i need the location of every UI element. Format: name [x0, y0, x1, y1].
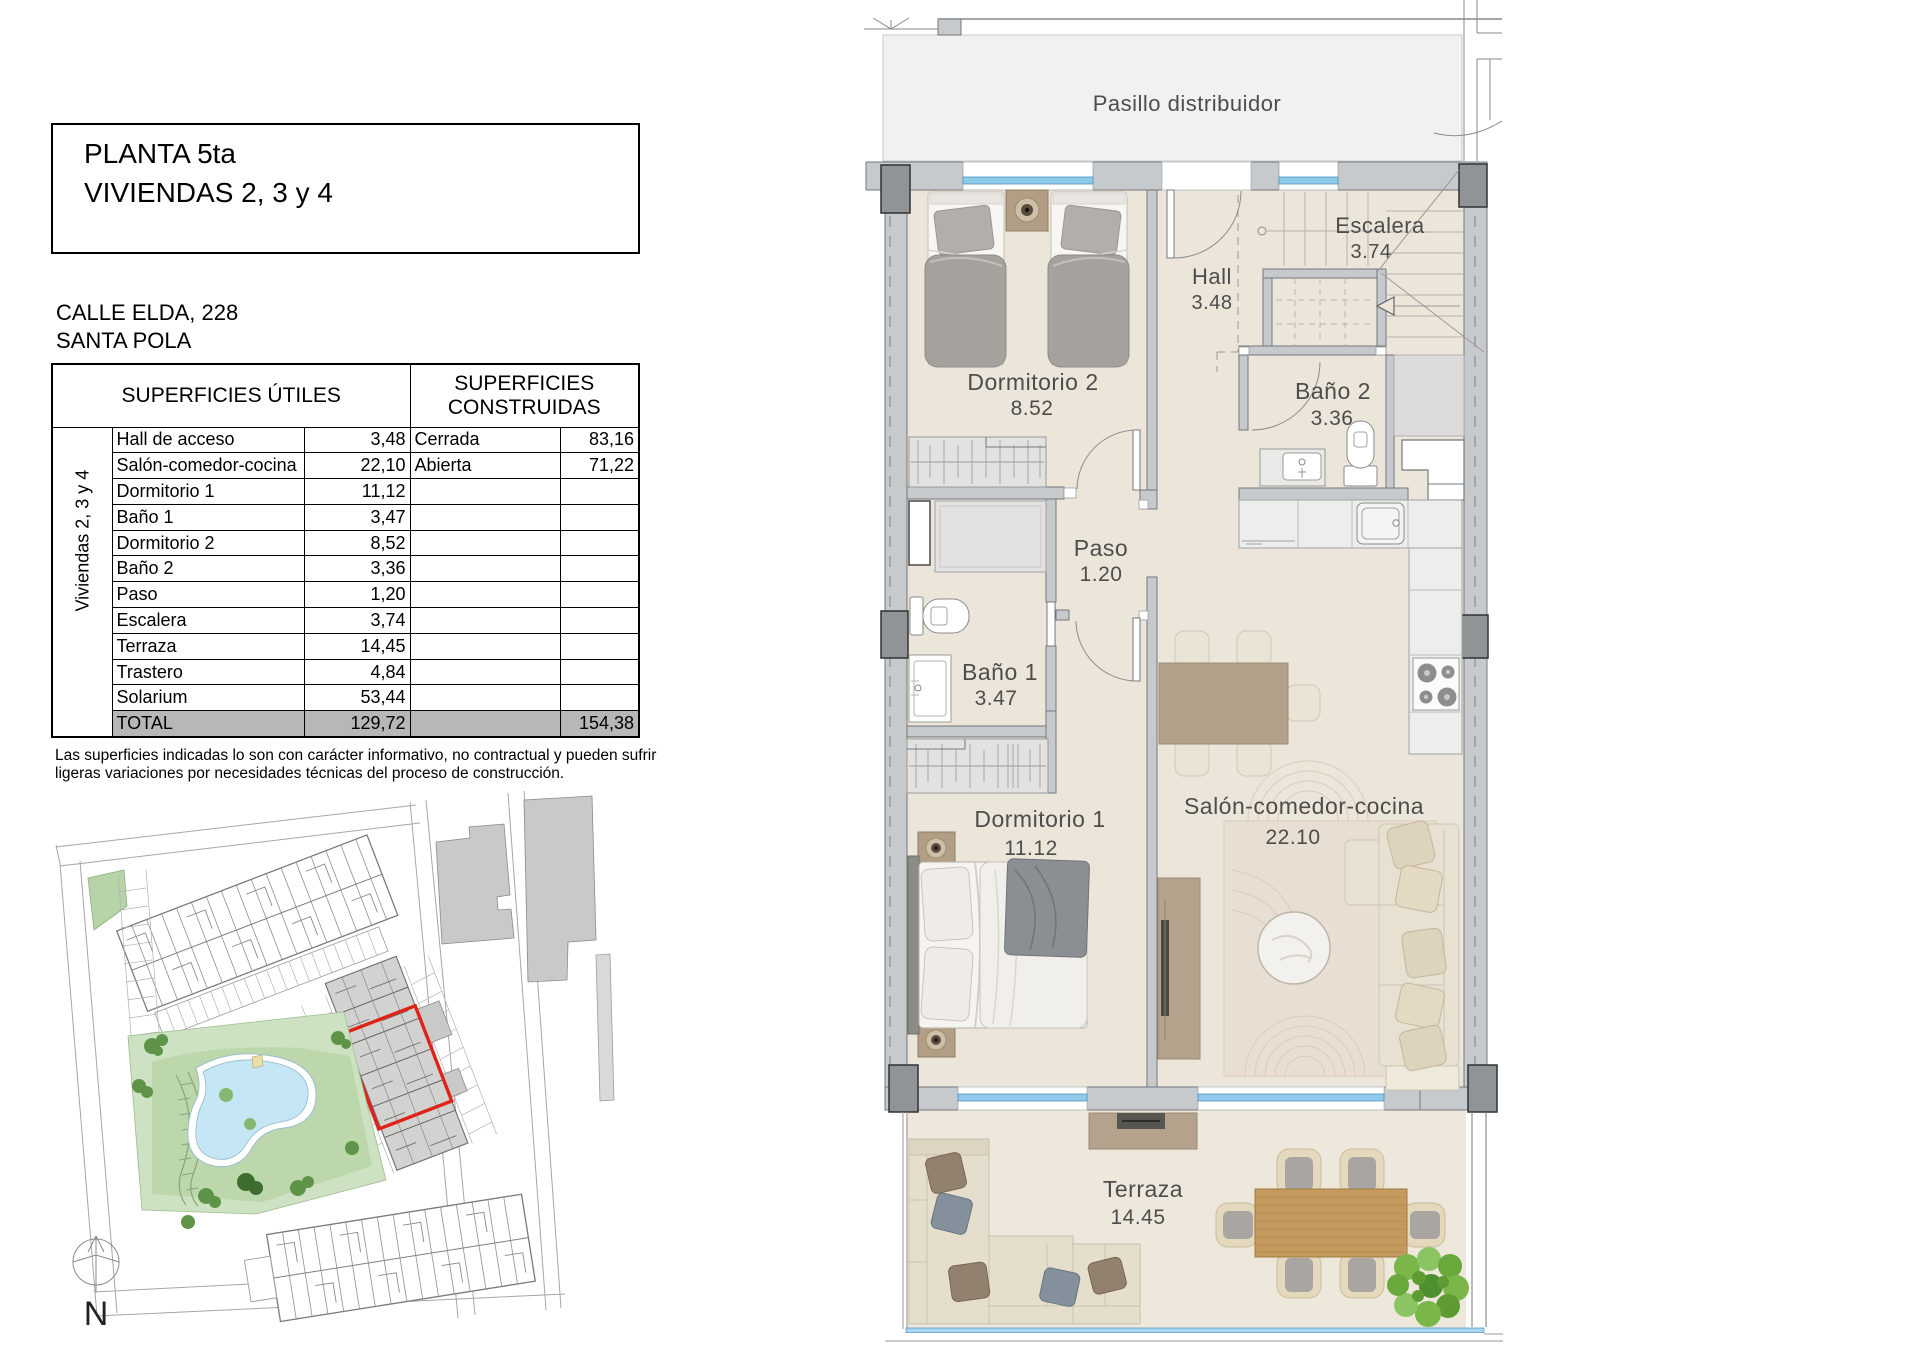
svg-text:Terraza: Terraza [1103, 1176, 1183, 1202]
svg-text:N: N [84, 1295, 109, 1333]
svg-text:3.47: 3.47 [975, 687, 1018, 710]
svg-text:11.12: 11.12 [1004, 837, 1058, 860]
svg-text:3.74: 3.74 [1351, 241, 1392, 263]
svg-text:3.36: 3.36 [1311, 407, 1354, 430]
svg-text:Baño 1: Baño 1 [962, 659, 1038, 685]
svg-text:Hall: Hall [1192, 264, 1232, 289]
svg-text:Pasillo distribuidor: Pasillo distribuidor [1093, 91, 1282, 116]
svg-text:3.48: 3.48 [1192, 292, 1233, 314]
svg-text:14.45: 14.45 [1110, 1206, 1165, 1229]
svg-text:22.10: 22.10 [1265, 826, 1320, 849]
svg-text:Baño 2: Baño 2 [1295, 378, 1371, 404]
svg-text:Dormitorio 1: Dormitorio 1 [974, 806, 1105, 832]
svg-text:8.52: 8.52 [1011, 397, 1054, 420]
svg-text:Dormitorio 2: Dormitorio 2 [967, 369, 1098, 395]
svg-text:Paso: Paso [1074, 535, 1128, 561]
svg-text:Salón-comedor-cocina: Salón-comedor-cocina [1184, 793, 1424, 819]
svg-text:Escalera: Escalera [1335, 213, 1425, 238]
svg-text:1.20: 1.20 [1080, 563, 1123, 586]
